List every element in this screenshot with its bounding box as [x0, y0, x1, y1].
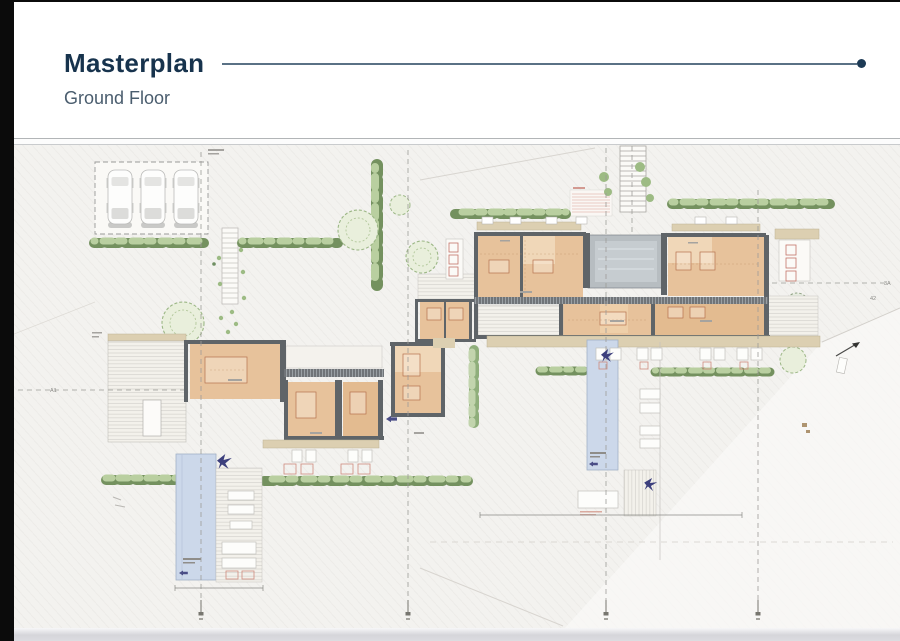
tree-icon	[406, 241, 438, 273]
masterplan-drawing: A1 3A 42	[14, 145, 900, 628]
title-rule	[222, 63, 857, 65]
car-icon	[173, 170, 200, 228]
car-icon	[140, 170, 167, 228]
tree-icon	[390, 195, 410, 215]
tree-icon	[780, 347, 806, 373]
grid-label-3a: 3A	[884, 281, 891, 287]
right-lap-pool	[578, 340, 660, 560]
upper-villa	[415, 217, 820, 347]
grid-label-a1: A1	[50, 388, 57, 394]
page-subtitle: Ground Floor	[64, 88, 866, 109]
window-bottom-edge	[14, 628, 900, 641]
car-icon	[107, 170, 134, 228]
tree-icon	[338, 210, 378, 250]
presentation-slide: Masterplan Ground Floor	[14, 2, 900, 639]
parking-area	[95, 149, 224, 234]
title-rule-end-dot	[857, 59, 866, 68]
header-divider	[14, 138, 900, 145]
title-row: Masterplan	[64, 48, 866, 79]
page-title: Masterplan	[64, 48, 204, 79]
slide-header: Masterplan Ground Floor	[14, 2, 900, 138]
grid-label-42: 42	[870, 296, 876, 302]
bird-icon	[217, 454, 232, 469]
lower-villa	[108, 334, 455, 448]
screenshot-root: { "header": { "title": "Masterplan", "su…	[0, 0, 900, 639]
masterplan-canvas: A1 3A 42	[14, 145, 900, 628]
left-lap-pool	[113, 454, 262, 582]
